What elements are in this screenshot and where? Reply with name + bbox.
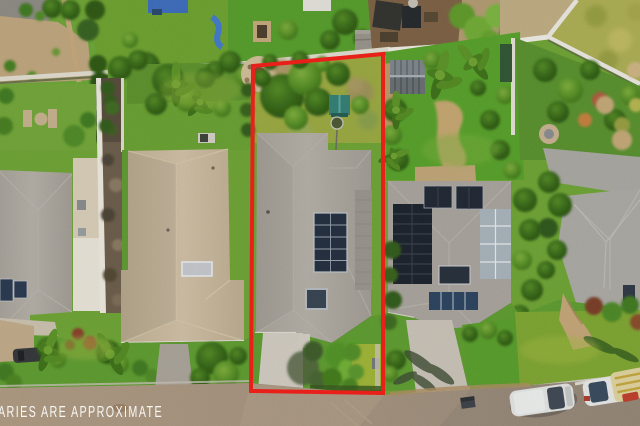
svg-text:ARIES ARE APPROXIMATE: ARIES ARE APPROXIMATE: [0, 404, 163, 421]
